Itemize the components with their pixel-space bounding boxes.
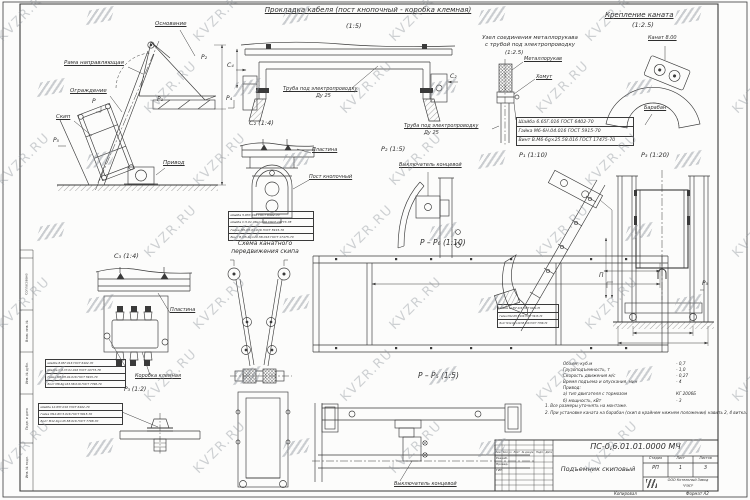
pp5-switch-label: Выключатель концевой (394, 482, 457, 487)
company-name-1: ООО Котельный Завод (658, 479, 718, 483)
p2-title: P₂ (1:5) (381, 146, 405, 153)
rope-mount-title: Крепление каната (605, 12, 674, 20)
view-pp5-guide-lines (236, 392, 290, 488)
skip-label: Скип (56, 115, 70, 121)
marker-p5-assembly: P₅ (53, 138, 59, 144)
p3-bolt-title: P₃ (1:2) (124, 387, 146, 393)
hose-tube-label: Труба под электропроводку (404, 124, 478, 129)
margin-label-vzam: Взам. инв. № (20, 310, 33, 352)
p3-bolt-parts-list: Шайба 12.65Г.016 ГОСТ 6402-70 Гайка М12-… (38, 403, 123, 425)
c3-parts-list: Шайба 8.65Г.016 ГОСТ 6402-70 Шайба С.8.3… (45, 359, 126, 388)
drive-label: Привод (163, 161, 185, 167)
c2-parts-list: Шайба 5.65Г.016 ГОСТ 6402-70 Шайба С.5.0… (228, 211, 314, 241)
base-label: Основание (155, 22, 186, 28)
stage-value: РП (643, 466, 668, 471)
sig-row-gip: ГИП (496, 469, 502, 472)
view-pp5-lines (312, 403, 536, 482)
c3-box-label: Коробка клемная (135, 374, 181, 379)
drum-label: Барабан (644, 106, 666, 111)
margin-label-inv-podl: Инв. № подл. (20, 443, 33, 491)
rope-scheme-title1: Схема канатного (222, 241, 308, 247)
c2-title: C₂ (1:4) (249, 120, 274, 127)
c3-title: C₃ (1:4) (114, 253, 139, 260)
cable-routing-scale: (1:5) (346, 23, 362, 30)
p3-20-title: P₃ (1:20) (641, 152, 669, 159)
note-1: 1. Все размеры уточнять на монтаже. (545, 404, 627, 408)
title-block-header-row: Изм. Кол.уч Лист № докум. Подп. Дата (495, 451, 552, 454)
view-cable-routing-lines (228, 42, 458, 121)
view-p3-bolt-lines (120, 412, 200, 455)
frame-label: Рама направляющая (64, 61, 124, 67)
company-logo (646, 479, 657, 488)
note-2: 2. При установке каната на барабан (скип… (545, 411, 747, 415)
marker-p2-assembly: P₂ (201, 55, 207, 61)
sheet-value: 1 (668, 466, 693, 471)
drawing-linework (0, 0, 750, 500)
rope-mount-scale: (1:2.5) (632, 22, 654, 29)
hose-joint-title2: с трубой под электропроводку (455, 43, 605, 49)
marker-p1-assembly: P₁ (157, 97, 163, 103)
tray-tube-label: Труба под электропроводку (283, 87, 357, 92)
margin-label-podp: Подп. и дата (20, 394, 33, 443)
copied-label: Копировал (614, 492, 637, 496)
p1-parts-list: Шайба 12.65Г.016 ГОСТ 6402-70 Гайка М12-… (497, 304, 559, 328)
marker-c4: C₄ (227, 63, 234, 69)
sheet-header: Лист (668, 457, 693, 461)
sheets-header: Листов (693, 457, 718, 461)
format-label: Формат А2 (686, 492, 709, 496)
margin-label-agreed: Согласовано (20, 258, 33, 310)
rope-label: Канат 8.00 (648, 36, 677, 41)
p3-20-marker-right: P₅ (702, 281, 708, 287)
hose-tube-dn: Ду 25 (424, 131, 439, 136)
pp5-title: P – P₅ (1:5) (418, 372, 459, 380)
c3-plate-label: Пластина (170, 308, 195, 313)
stage-header: Стадия (643, 457, 668, 461)
blueprint-sheet: Прокладка кабеля (пост кнопочный - короб… (0, 0, 750, 500)
sheets-value: 3 (693, 466, 718, 471)
rope-scheme-title2: передвижения скипа (218, 249, 312, 255)
c2-post-label: Пост кнопочный (309, 175, 352, 180)
cable-routing-title: Прокладка кабеля (пост кнопочный - короб… (238, 7, 498, 15)
spec-table: Объем, куб.м- 0,7 Грузоподъемность, т- 1… (563, 361, 718, 404)
margin-label-inv-dubl: Инв. № дубл. (20, 352, 33, 394)
marker-c2: C₂ (450, 74, 457, 80)
doc-name: Подъемник скиповый (553, 466, 643, 473)
guard-label: Ограждение (70, 89, 107, 95)
pp6-title: P – P₆ (1:10) (420, 239, 466, 247)
sig-row-developer: Разраб. (496, 457, 508, 460)
hose-label: Металлорукав (524, 57, 562, 62)
p1-title: P₁ (1:10) (519, 152, 547, 159)
company-name-2: "РЭП" (658, 485, 718, 489)
view-p3-20-lines (607, 170, 714, 346)
clamp-label: Хомут (536, 75, 552, 80)
hose-joint-scale: (1:2.5) (505, 51, 523, 57)
marker-p-assembly: P (92, 99, 96, 105)
doc-number: ПС-0,6.01.01.0000 МЧ (553, 443, 718, 452)
marker-p4: P₄ (226, 96, 232, 102)
p3-20-marker-left: П (599, 273, 604, 279)
view-rope-scheme-lines (228, 260, 292, 383)
p2-switch-label: Выключатель концевой (399, 163, 462, 168)
c2-plate-label: Пластина (312, 148, 337, 153)
view-rope-mount-lines (606, 46, 700, 128)
view-pp6-lines (313, 256, 668, 352)
tray-tube-dn: Ду 25 (316, 94, 331, 99)
sig-row-checker: Провер. (496, 463, 508, 466)
hose-parts-list: Шайба 6.65Г.016 ГОСТ 6402-70 Гайка М6-6Н… (516, 117, 634, 146)
